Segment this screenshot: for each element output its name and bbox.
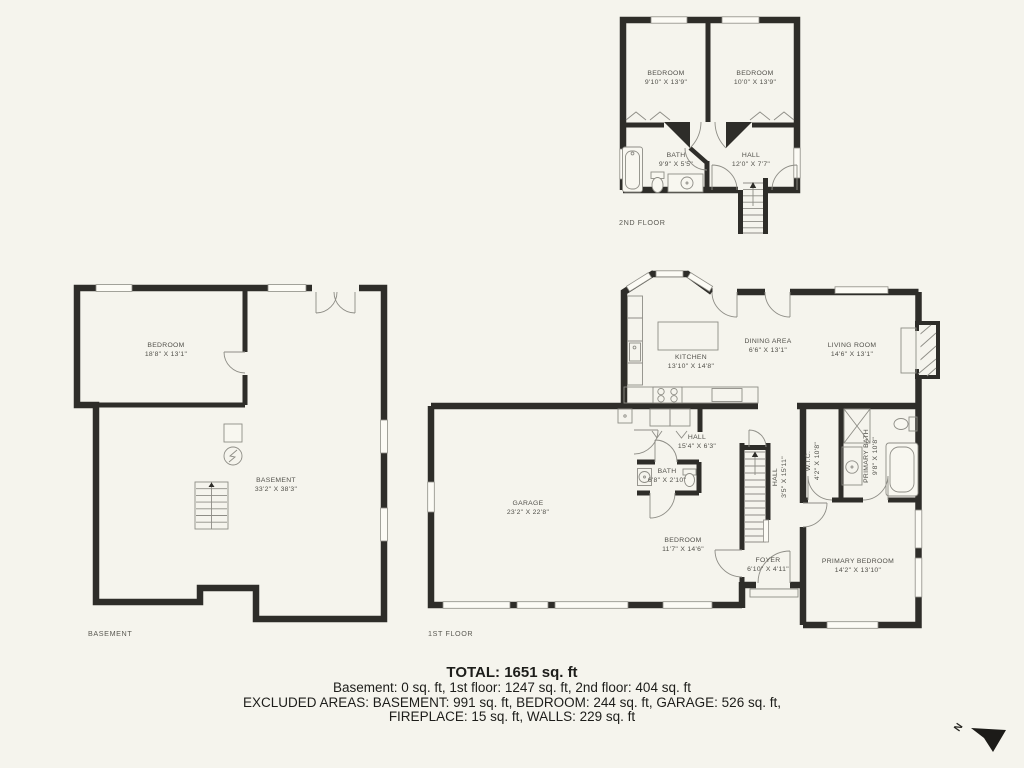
primary-toilet xyxy=(894,417,917,431)
room-label-hall: HALL 12'0" X 7'7" xyxy=(732,152,771,168)
door-arc xyxy=(655,440,677,462)
room-dims: 6'8" X 2'10" xyxy=(648,477,687,484)
room-dims: 6'6" X 13'1" xyxy=(749,347,788,354)
room-label-primary-bedroom: PRIMARY BEDROOM 14'2" X 13'10" xyxy=(822,558,894,574)
north-arrow: N xyxy=(952,721,1006,752)
room-label-dining: DINING AREA 6'6" X 13'1" xyxy=(744,338,791,354)
basement-plan: BEDROOM 18'8" X 13'1" BASEMENT 33'2" X 3… xyxy=(77,284,387,639)
staircase xyxy=(741,178,766,234)
toilet xyxy=(651,172,664,193)
window xyxy=(827,622,878,629)
window xyxy=(915,510,922,548)
window xyxy=(915,558,922,597)
window xyxy=(268,285,306,292)
room-name: HALL xyxy=(772,468,779,486)
excluded-areas-line2: FIREPLACE: 15 sq. ft, WALLS: 229 sq. ft xyxy=(0,710,1024,725)
door-arc xyxy=(749,430,766,447)
room-label-garage: GARAGE 23'2" X 22'8" xyxy=(507,500,550,516)
door-opening xyxy=(630,430,637,455)
room-label-hall-vertical: HALL 3'5" X 15'11" xyxy=(772,456,788,498)
floorplan-page: BEDROOM 9'10" X 13'9" BEDROOM 10'0" X 13… xyxy=(0,0,1024,768)
utility-box xyxy=(224,424,242,442)
window xyxy=(722,17,759,23)
window xyxy=(96,285,132,292)
room-dims: 9'10" X 13'9" xyxy=(645,79,688,86)
door-arc xyxy=(765,292,790,317)
room-dims: 23'2" X 22'8" xyxy=(507,509,550,516)
room-name: DINING AREA xyxy=(744,338,791,345)
kitchen-island xyxy=(658,322,718,350)
room-label-bedroom: BEDROOM 11'7" X 14'6" xyxy=(662,537,704,553)
room-name: PRIMARY BATH xyxy=(863,429,870,483)
room-label-foyer: FOYER 6'10" X 4'11" xyxy=(747,557,789,573)
room-name: BEDROOM xyxy=(736,70,773,77)
room-dims: 10'0" X 13'9" xyxy=(734,79,777,86)
total-area: TOTAL: 1651 sq. ft xyxy=(0,664,1024,681)
bay-window xyxy=(626,271,712,292)
room-name: GARAGE xyxy=(513,500,544,507)
window xyxy=(651,17,687,23)
room-label-bedroom: BEDROOM 18'8" X 13'1" xyxy=(145,342,188,358)
window xyxy=(835,287,888,294)
electrical-panel xyxy=(224,447,242,465)
room-name: LIVING ROOM xyxy=(828,342,877,349)
window xyxy=(381,508,388,541)
floorplan-drawing: BEDROOM 9'10" X 13'9" BEDROOM 10'0" X 13… xyxy=(0,0,1024,768)
floor-label-basement: BASEMENT xyxy=(88,629,132,638)
room-dims: 12'0" X 7'7" xyxy=(732,161,771,168)
entry-step xyxy=(750,589,798,597)
window xyxy=(428,482,435,512)
room-name: BASEMENT xyxy=(256,477,296,484)
floor-label-second: 2ND FLOOR xyxy=(619,218,666,227)
stove xyxy=(653,387,682,403)
door-opening xyxy=(312,284,359,293)
kitchen-counter xyxy=(624,296,758,403)
sink-vanity xyxy=(668,174,703,192)
room-dims: 9'9" X 5'5" xyxy=(659,161,693,168)
wall-wedge xyxy=(664,122,690,148)
window xyxy=(443,602,510,609)
room-dims: 6'10" X 4'11" xyxy=(747,566,789,573)
room-name: BEDROOM xyxy=(147,342,184,349)
staircase xyxy=(745,452,769,543)
door-opening xyxy=(799,503,806,527)
north-arrow-icon xyxy=(971,728,1006,752)
wall-wedge xyxy=(726,122,752,148)
hall-closet xyxy=(650,409,690,438)
door-opening xyxy=(756,581,790,588)
door-arc xyxy=(316,292,355,313)
room-dims: 33'2" X 38'3" xyxy=(255,486,298,493)
room-dims: 18'8" X 13'1" xyxy=(145,351,188,358)
floor-areas: Basement: 0 sq. ft, 1st floor: 1247 sq. … xyxy=(0,681,1024,696)
area-summary: TOTAL: 1651 sq. ft Basement: 0 sq. ft, 1… xyxy=(0,664,1024,725)
room-name: PRIMARY BEDROOM xyxy=(822,558,894,565)
excluded-areas-line1: EXCLUDED AREAS: BASEMENT: 991 sq. ft, BE… xyxy=(0,696,1024,711)
second-floor-plan: BEDROOM 9'10" X 13'9" BEDROOM 10'0" X 13… xyxy=(619,17,800,234)
door-arc xyxy=(650,493,675,518)
room-dims: 4'2" X 10'8" xyxy=(814,442,821,481)
wall xyxy=(77,288,384,619)
room-label-bedroom-left: BEDROOM 9'10" X 13'9" xyxy=(645,70,688,86)
floor-label-first: 1ST FLOOR xyxy=(428,629,473,638)
room-label-primary-bath: PRIMARY BATH 9'8" X 10'8" xyxy=(863,429,879,483)
room-name: W.I.C. xyxy=(805,451,812,471)
room-name: FOYER xyxy=(756,557,781,564)
room-label-kitchen: KITCHEN 13'10" X 14'8" xyxy=(668,354,715,370)
first-floor-plan: KITCHEN 13'10" X 14'8" DINING AREA 6'6" … xyxy=(428,271,938,638)
door-arc xyxy=(712,165,737,190)
window xyxy=(555,602,628,609)
room-dims: 13'10" X 14'8" xyxy=(668,363,715,370)
room-label-hall-upper: HALL 15'4" X 6'3" xyxy=(678,434,717,450)
room-dims: 3'5" X 15'11" xyxy=(781,456,788,498)
room-name: BEDROOM xyxy=(647,70,684,77)
door-arc xyxy=(715,550,742,577)
door-arc xyxy=(224,352,245,373)
room-name: BEDROOM xyxy=(664,537,701,544)
door-arc xyxy=(715,122,726,148)
room-label-living: LIVING ROOM 14'6" X 13'1" xyxy=(828,342,877,358)
staircase xyxy=(195,482,228,529)
door-opening xyxy=(713,288,738,296)
window xyxy=(381,420,388,453)
room-label-basement: BASEMENT 33'2" X 38'3" xyxy=(255,477,298,493)
door-opening xyxy=(765,288,790,296)
room-dims: 14'2" X 13'10" xyxy=(835,567,882,574)
bathtub xyxy=(623,147,643,192)
door-arc xyxy=(690,122,701,148)
room-dims: 14'6" X 13'1" xyxy=(831,351,874,358)
room-name: BATH xyxy=(667,152,686,159)
room-dims: 15'4" X 6'3" xyxy=(678,443,717,450)
door-arc xyxy=(712,292,737,317)
door-arc xyxy=(772,165,797,190)
room-label-wic: W.I.C. 4'2" X 10'8" xyxy=(805,442,821,481)
window xyxy=(663,602,712,609)
water-heater xyxy=(618,409,632,423)
wall xyxy=(623,23,797,190)
room-label-bath: BATH 6'8" X 2'10" xyxy=(648,468,687,484)
room-dims: 11'7" X 14'6" xyxy=(662,546,704,553)
room-name: HALL xyxy=(688,434,706,441)
room-name: BATH xyxy=(658,468,677,475)
fireplace xyxy=(901,323,938,377)
room-dims: 9'8" X 10'8" xyxy=(872,437,879,476)
room-name: HALL xyxy=(742,152,760,159)
room-name: KITCHEN xyxy=(675,354,707,361)
primary-bathtub xyxy=(886,443,918,496)
window xyxy=(517,602,548,609)
room-label-bedroom-right: BEDROOM 10'0" X 13'9" xyxy=(734,70,777,86)
primary-vanity xyxy=(842,447,862,485)
